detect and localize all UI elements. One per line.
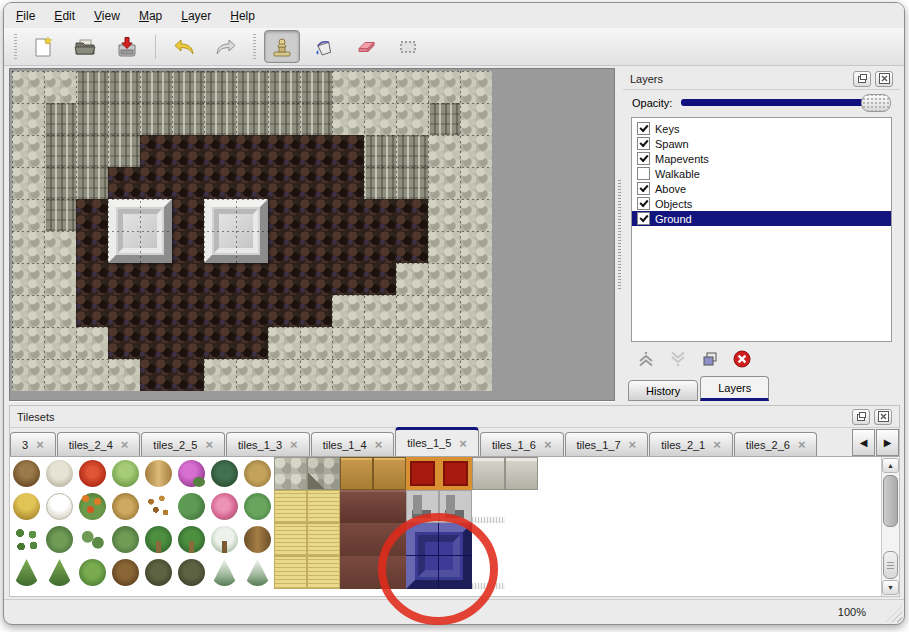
opacity-slider-track[interactable] [681, 99, 887, 106]
palette-tile-orange-flowers[interactable] [76, 490, 109, 523]
map-tile-cave-floor[interactable] [204, 263, 236, 295]
close-tab-icon[interactable]: × [544, 438, 552, 451]
palette-tile-red-carpet[interactable] [439, 457, 472, 490]
map-tile-stone-ground[interactable] [268, 359, 300, 391]
map-tile-stone-ground[interactable] [460, 103, 492, 135]
close-tab-icon[interactable]: × [121, 438, 129, 451]
map-tile-cave-floor[interactable] [204, 327, 236, 359]
map-tile-stone-ground[interactable] [12, 231, 44, 263]
map-tile-stone-ground[interactable] [76, 327, 108, 359]
map-tile-cave-floor[interactable] [236, 263, 268, 295]
palette-tile-metal-frame[interactable] [439, 490, 472, 523]
map-tile-stone-ground[interactable] [44, 295, 76, 327]
palette-tile-sprouts[interactable] [10, 523, 43, 556]
map-tile-cliff-wall[interactable] [204, 103, 236, 135]
opacity-slider-handle[interactable] [861, 94, 891, 112]
map-tile-cave-floor[interactable] [76, 199, 108, 231]
palette-tile-dead-tree[interactable] [10, 457, 43, 490]
map-tile-cave-floor[interactable] [204, 295, 236, 327]
map-tile-stone-ground[interactable] [12, 103, 44, 135]
map-tile-stone-ground[interactable] [428, 231, 460, 263]
palette-tile-straw-mat[interactable] [307, 556, 340, 589]
palette-tile-shrub-pair[interactable] [76, 523, 109, 556]
map-tile-cave-floor[interactable] [108, 167, 140, 199]
layer-visibility-checkbox[interactable] [637, 182, 650, 195]
palette-tile-purple-flowers[interactable] [175, 457, 208, 490]
map-tile-stone-ground[interactable] [460, 135, 492, 167]
map-tile-cave-floor[interactable] [172, 327, 204, 359]
menu-edit[interactable]: Edit [54, 9, 75, 23]
palette-tile-stone-block[interactable] [472, 457, 505, 490]
tilesets-dock-buttons [852, 409, 892, 425]
close-tab-icon[interactable]: × [713, 438, 721, 451]
menu-map[interactable]: Map [139, 9, 162, 23]
map-tile-cave-floor[interactable] [172, 167, 204, 199]
map-tile-stone-ground[interactable] [300, 327, 332, 359]
map-tile-cave-floor[interactable] [332, 167, 364, 199]
map-tile-cave-floor[interactable] [172, 199, 204, 231]
map-tile-cliff-wall[interactable] [204, 71, 236, 103]
palette-tile-pine-round[interactable] [76, 556, 109, 589]
layer-name: Objects [655, 198, 692, 210]
palette-tile-straw-mat[interactable] [274, 490, 307, 523]
menu-bar: FileEditViewMapLayerHelp [4, 3, 904, 28]
palette-tile-white-plain[interactable] [505, 490, 538, 523]
map-tile-cliff-wall[interactable] [108, 103, 140, 135]
map-tile-cliff-wall[interactable] [172, 103, 204, 135]
palette-tile-tan-trunk[interactable] [142, 457, 175, 490]
map-tile-cave-floor[interactable] [300, 295, 332, 327]
scrollbar-grip[interactable] [883, 551, 898, 579]
layer-row-keys[interactable]: Keys [632, 121, 891, 136]
palette-tile-cobblestone-dark[interactable] [307, 457, 340, 490]
map-tile-stone-ground[interactable] [428, 359, 460, 391]
close-tab-icon[interactable]: × [629, 438, 637, 451]
close-dock-button[interactable] [874, 409, 892, 425]
map-tile-stone-ground[interactable] [12, 327, 44, 359]
stamp-icon [271, 36, 293, 58]
palette-tile-dry-bush[interactable] [109, 490, 142, 523]
map-tile-stone-ground[interactable] [44, 71, 76, 103]
map-tile-cave-floor[interactable] [300, 199, 332, 231]
tileset-tab-tiles_1_7[interactable]: tiles_1_7× [565, 432, 649, 456]
map-tile-cliff-wall[interactable] [268, 71, 300, 103]
map-tile-stone-ground[interactable] [460, 295, 492, 327]
palette-tile-straw-mat[interactable] [274, 556, 307, 589]
palette-tile-cobblestone[interactable] [274, 457, 307, 490]
map-tile-cave-floor[interactable] [172, 231, 204, 263]
tileset-tab-label: tiles_2_5 [153, 439, 197, 451]
map-tile-stone-ground[interactable] [428, 327, 460, 359]
map-tile-stone-ground[interactable] [428, 199, 460, 231]
tileset-tab-label: tiles_2_1 [661, 439, 705, 451]
map-tile-cliff-wall[interactable] [236, 71, 268, 103]
map-tile-stone-ground[interactable] [44, 263, 76, 295]
map-tile-cliff-wall[interactable] [428, 103, 460, 135]
map-tile-stone-ground[interactable] [396, 103, 428, 135]
map-tile-cave-floor[interactable] [108, 327, 140, 359]
palette-tile-pale-tree[interactable] [43, 457, 76, 490]
map-tile-cave-floor[interactable] [396, 199, 428, 231]
layer-row-mapevents[interactable]: Mapevents [632, 151, 891, 166]
new-file-icon [31, 35, 55, 59]
palette-tile-stone-block[interactable] [505, 457, 538, 490]
map-tile-cave-floor[interactable] [364, 231, 396, 263]
palette-tile-red-bloom[interactable] [76, 457, 109, 490]
stamp-tool-button[interactable] [264, 30, 300, 63]
map-tile-stone-ground[interactable] [396, 359, 428, 391]
map-tile-stone-ground[interactable] [428, 71, 460, 103]
map-tile-stone-ground[interactable] [332, 359, 364, 391]
map-tile-stone-ground[interactable] [460, 167, 492, 199]
palette-tile-twisted-tree[interactable] [109, 556, 142, 589]
map-tile-cave-floor[interactable] [396, 231, 428, 263]
tileset-tab-tiles_2_5[interactable]: tiles_2_5× [141, 432, 225, 456]
undo-button[interactable] [166, 30, 202, 63]
map-tile-stone-ground[interactable] [332, 295, 364, 327]
map-tile-cave-floor[interactable] [236, 135, 268, 167]
palette-tile-dry-sprig[interactable] [241, 457, 274, 490]
map-tile-stone-ground[interactable] [364, 103, 396, 135]
map-tile-stone-ground[interactable] [76, 359, 108, 391]
save-map-button[interactable] [109, 30, 145, 63]
layer-row-objects[interactable]: Objects [632, 196, 891, 211]
scroll-tabs-right-button[interactable]: ▶ [876, 429, 899, 456]
palette-tile-gnarled-tree[interactable] [175, 556, 208, 589]
map-tile-stone-ground[interactable] [460, 199, 492, 231]
map-tile-cave-floor[interactable] [236, 327, 268, 359]
select-tool-button[interactable] [390, 30, 426, 63]
menu-help[interactable]: Help [230, 9, 255, 23]
map-tile-cliff-wall[interactable] [44, 103, 76, 135]
map-tile-stone-ground[interactable] [364, 359, 396, 391]
palette-tile-dark-table[interactable] [373, 490, 406, 523]
map-tile-stone-ground[interactable] [12, 71, 44, 103]
palette-tile-dark-table[interactable] [340, 490, 373, 523]
layer-row-ground[interactable]: Ground [632, 211, 891, 226]
map-tile-cave-floor[interactable] [300, 135, 332, 167]
palette-tile-brown-block[interactable] [340, 523, 373, 556]
opacity-slider[interactable] [681, 94, 891, 111]
map-tile-cave-floor[interactable] [300, 263, 332, 295]
map-tile-cliff-wall[interactable] [44, 167, 76, 199]
map-tile-cliff-wall[interactable] [140, 103, 172, 135]
layer-row-spawn[interactable]: Spawn [632, 136, 891, 151]
palette-tile-straw-mat[interactable] [307, 523, 340, 556]
map-tile-cave-floor[interactable] [332, 231, 364, 263]
menu-file[interactable]: File [16, 9, 35, 23]
map-tile-stone-ground[interactable] [44, 231, 76, 263]
map-tile-cliff-wall[interactable] [172, 71, 204, 103]
palette-tile-white-plain[interactable] [505, 523, 538, 556]
palette-tile-straw-mat[interactable] [307, 490, 340, 523]
map-tile-cave-floor[interactable] [140, 359, 172, 391]
map-tile-stone-ground[interactable] [12, 167, 44, 199]
layer-visibility-checkbox[interactable] [637, 167, 650, 180]
close-tab-icon[interactable]: × [290, 438, 298, 451]
palette-tile-brown-block[interactable] [373, 523, 406, 556]
tileset-tab-tiles_2_4[interactable]: tiles_2_4× [57, 432, 141, 456]
palette-tile-snow-mound[interactable] [43, 490, 76, 523]
tileset-tab-tiles_1_3[interactable]: tiles_1_3× [226, 432, 310, 456]
map-tile-cliff-wall[interactable] [364, 167, 396, 199]
layer-name: Spawn [655, 138, 689, 150]
palette-tile-shrub[interactable] [43, 523, 76, 556]
map-tile-cave-floor[interactable] [268, 167, 300, 199]
map-tile-stone-ground[interactable] [460, 231, 492, 263]
pedestal-platform[interactable] [204, 199, 268, 263]
palette-scrollbar[interactable]: ▲ ▼ [881, 457, 899, 596]
map-tile-stone-ground[interactable] [460, 71, 492, 103]
map-tile-stone-ground[interactable] [44, 359, 76, 391]
map-tile-stone-ground[interactable] [396, 295, 428, 327]
scroll-tabs-left-button[interactable]: ◀ [852, 429, 875, 456]
tileset-tab-tiles_2_1[interactable]: tiles_2_1× [649, 432, 733, 456]
map-tile-stone-ground[interactable] [428, 263, 460, 295]
map-tile-stone-ground[interactable] [204, 359, 236, 391]
map-tile-stone-ground[interactable] [236, 359, 268, 391]
map-tile-stone-ground[interactable] [460, 327, 492, 359]
map-tile-cave-floor[interactable] [140, 263, 172, 295]
palette-tile-lily-pad-large[interactable] [241, 490, 274, 523]
palette-tile-palm-top[interactable] [175, 523, 208, 556]
toolbar-drag-handle[interactable] [12, 34, 18, 60]
map-tile-cave-floor[interactable] [268, 199, 300, 231]
redo-button[interactable] [208, 30, 244, 63]
palette-tile-dark-fern[interactable] [208, 457, 241, 490]
map-tile-cave-floor[interactable] [236, 167, 268, 199]
map-tile-stone-ground[interactable] [268, 327, 300, 359]
tileset-tab-tiles_1_4[interactable]: tiles_1_4× [311, 432, 395, 456]
tileset-tab-label: tiles_1_6 [492, 439, 536, 451]
float-icon [857, 73, 868, 84]
map-tile-stone-ground[interactable] [108, 359, 140, 391]
map-tile-stone-ground[interactable] [396, 263, 428, 295]
map-view[interactable] [12, 71, 492, 391]
palette-tile-white-plain[interactable] [505, 556, 538, 589]
map-tile-stone-ground[interactable] [12, 199, 44, 231]
map-tile-cave-floor[interactable] [300, 167, 332, 199]
map-tile-cliff-wall[interactable] [76, 135, 108, 167]
palette-tile-white-plain[interactable] [472, 523, 505, 556]
tileset-tab-tiles_2_6[interactable]: tiles_2_6× [734, 432, 818, 456]
map-tile-cliff-wall[interactable] [76, 71, 108, 103]
layer-visibility-checkbox[interactable] [637, 212, 650, 225]
tab-layers[interactable]: Layers [700, 376, 769, 401]
palette-tile-palm-trunk[interactable] [241, 523, 274, 556]
map-tile-cliff-wall[interactable] [76, 167, 108, 199]
palette-tile-hay-mound[interactable] [10, 490, 43, 523]
close-tab-icon[interactable]: × [36, 438, 44, 451]
delete-layer-button[interactable] [731, 348, 753, 370]
map-tile-cave-floor[interactable] [204, 135, 236, 167]
map-tile-cave-floor[interactable] [204, 167, 236, 199]
palette-tile-brown-block[interactable] [340, 556, 373, 589]
menu-view[interactable]: View [94, 9, 120, 23]
move-layer-down-button[interactable] [667, 348, 689, 370]
map-tile-cave-floor[interactable] [268, 231, 300, 263]
map-tile-cliff-wall[interactable] [268, 103, 300, 135]
fill-bucket-icon [313, 36, 335, 58]
map-tile-stone-ground[interactable] [428, 167, 460, 199]
close-tab-icon[interactable]: × [205, 438, 213, 451]
map-tile-cave-floor[interactable] [268, 135, 300, 167]
layer-name: Walkable [655, 168, 700, 180]
map-tile-stone-ground[interactable] [396, 71, 428, 103]
map-tile-stone-ground[interactable] [12, 263, 44, 295]
map-tile-cave-floor[interactable] [332, 135, 364, 167]
map-tile-stone-ground[interactable] [428, 135, 460, 167]
eraser-tool-button[interactable] [348, 30, 384, 63]
map-tile-stone-ground[interactable] [364, 71, 396, 103]
tileset-tab-label: tiles_2_6 [746, 439, 790, 451]
redo-icon [213, 36, 239, 58]
duplicate-layer-button[interactable] [699, 348, 721, 370]
status-bar: 100% [4, 599, 904, 624]
map-tile-cave-floor[interactable] [268, 295, 300, 327]
map-tile-cave-floor[interactable] [300, 231, 332, 263]
map-tile-cliff-wall[interactable] [108, 135, 140, 167]
map-tile-cave-floor[interactable] [172, 295, 204, 327]
tab-scroll-buttons: ◀▶ [851, 429, 899, 456]
map-tile-stone-ground[interactable] [396, 327, 428, 359]
map-tile-cave-floor[interactable] [76, 263, 108, 295]
vertical-splitter[interactable] [615, 68, 623, 401]
map-tile-stone-ground[interactable] [12, 135, 44, 167]
map-tile-cave-floor[interactable] [236, 295, 268, 327]
map-tile-cliff-wall[interactable] [140, 71, 172, 103]
palette-tile-lily-pads[interactable] [175, 490, 208, 523]
selected-tile-highlight[interactable] [406, 523, 472, 589]
open-map-button[interactable] [67, 30, 103, 63]
map-tile-cave-floor[interactable] [140, 295, 172, 327]
palette-tile-snow-palm[interactable] [208, 523, 241, 556]
palette-tile-snow-pine[interactable] [208, 556, 241, 589]
palette-tile-red-carpet[interactable] [406, 457, 439, 490]
layer-row-walkable[interactable]: Walkable [632, 166, 891, 181]
palette-tile-palm-top[interactable] [142, 523, 175, 556]
map-tile-stone-ground[interactable] [332, 103, 364, 135]
tile-palette[interactable] [10, 457, 881, 596]
map-tile-cave-floor[interactable] [172, 359, 204, 391]
map-tile-cave-floor[interactable] [108, 263, 140, 295]
map-tile-cave-floor[interactable] [140, 167, 172, 199]
scroll-down-arrow-icon[interactable]: ▼ [882, 580, 899, 595]
palette-tile-pine-tree[interactable] [10, 556, 43, 589]
map-tile-cliff-wall[interactable] [236, 103, 268, 135]
layer-row-above[interactable]: Above [632, 181, 891, 196]
layer-visibility-checkbox[interactable] [637, 137, 650, 150]
close-tab-icon[interactable]: × [798, 438, 806, 451]
map-tile-cave-floor[interactable] [76, 231, 108, 263]
float-dock-button[interactable] [853, 71, 871, 87]
resize-grip[interactable] [886, 606, 902, 622]
close-tab-icon[interactable]: × [375, 438, 383, 451]
map-tile-stone-ground[interactable] [332, 71, 364, 103]
map-canvas-panel[interactable] [9, 68, 615, 401]
map-tile-cliff-wall[interactable] [108, 71, 140, 103]
pedestal-platform[interactable] [108, 199, 172, 263]
palette-tile-snow-pine[interactable] [241, 556, 274, 589]
palette-tile-brown-block[interactable] [373, 556, 406, 589]
tileset-tab-tiles_1_5[interactable]: tiles_1_5× [395, 427, 479, 456]
map-tile-cave-floor[interactable] [332, 263, 364, 295]
map-tile-cliff-wall[interactable] [300, 103, 332, 135]
map-tile-stone-ground[interactable] [12, 359, 44, 391]
map-tile-stone-ground[interactable] [300, 359, 332, 391]
palette-tile-wood-panel[interactable] [340, 457, 373, 490]
scroll-up-arrow-icon[interactable]: ▲ [882, 458, 899, 473]
map-tile-stone-ground[interactable] [428, 295, 460, 327]
palette-tile-white-cloth[interactable] [472, 490, 505, 523]
map-tile-cave-floor[interactable] [268, 263, 300, 295]
move-layer-up-button[interactable] [635, 348, 657, 370]
new-map-button[interactable] [25, 30, 61, 63]
layers-dock-title: Layers [630, 73, 663, 85]
scrollbar-thumb[interactable] [883, 475, 898, 527]
palette-tile-pink-flowers[interactable] [208, 490, 241, 523]
map-tile-cliff-wall[interactable] [396, 167, 428, 199]
map-tile-cave-floor[interactable] [140, 327, 172, 359]
layer-visibility-checkbox[interactable] [637, 197, 650, 210]
layer-visibility-checkbox[interactable] [637, 122, 650, 135]
close-tab-icon[interactable]: × [459, 437, 467, 450]
map-tile-cliff-wall[interactable] [76, 103, 108, 135]
map-tile-cliff-wall[interactable] [44, 199, 76, 231]
palette-tile-metal-frame[interactable] [406, 490, 439, 523]
map-tile-cliff-wall[interactable] [44, 135, 76, 167]
map-tile-stone-ground[interactable] [44, 327, 76, 359]
tilesets-dock: Tilesets 3×tiles_2_4×tiles_2_5×tiles_1_3… [9, 405, 900, 597]
palette-tile-shrub[interactable] [109, 523, 142, 556]
map-tile-cave-floor[interactable] [76, 295, 108, 327]
palette-tile-leaf-scatter[interactable] [142, 490, 175, 523]
map-tile-cliff-wall[interactable] [300, 71, 332, 103]
close-dock-button[interactable] [875, 71, 893, 87]
palette-tile-green-stump[interactable] [109, 457, 142, 490]
palette-tile-gnarled-tree[interactable] [142, 556, 175, 589]
palette-tile-pine-tree[interactable] [43, 556, 76, 589]
float-dock-button[interactable] [852, 409, 870, 425]
map-tile-stone-ground[interactable] [460, 359, 492, 391]
map-tile-cliff-wall[interactable] [364, 135, 396, 167]
map-tile-cave-floor[interactable] [172, 135, 204, 167]
map-tile-stone-ground[interactable] [460, 263, 492, 295]
map-tile-stone-ground[interactable] [12, 295, 44, 327]
palette-tile-straw-mat[interactable] [274, 523, 307, 556]
map-tile-cave-floor[interactable] [332, 199, 364, 231]
palette-tile-wood-panel[interactable] [373, 457, 406, 490]
map-tile-cave-floor[interactable] [108, 295, 140, 327]
tileset-tab-3[interactable]: 3× [10, 432, 56, 456]
chevron-down-icon [668, 349, 688, 369]
tab-history[interactable]: History [628, 380, 698, 401]
menu-layer[interactable]: Layer [181, 9, 211, 23]
map-tile-cave-floor[interactable] [172, 263, 204, 295]
map-tile-cave-floor[interactable] [140, 135, 172, 167]
fill-tool-button[interactable] [306, 30, 342, 63]
layer-visibility-checkbox[interactable] [637, 152, 650, 165]
toolbar-drag-handle[interactable] [251, 34, 257, 60]
map-tile-cave-floor[interactable] [364, 263, 396, 295]
map-tile-cliff-wall[interactable] [396, 135, 428, 167]
map-tile-stone-ground[interactable] [364, 327, 396, 359]
palette-tile-white-cloth[interactable] [472, 556, 505, 589]
map-tile-stone-ground[interactable] [332, 327, 364, 359]
map-tile-stone-ground[interactable] [364, 295, 396, 327]
tileset-tab-tiles_1_6[interactable]: tiles_1_6× [480, 432, 564, 456]
map-tile-cave-floor[interactable] [364, 199, 396, 231]
